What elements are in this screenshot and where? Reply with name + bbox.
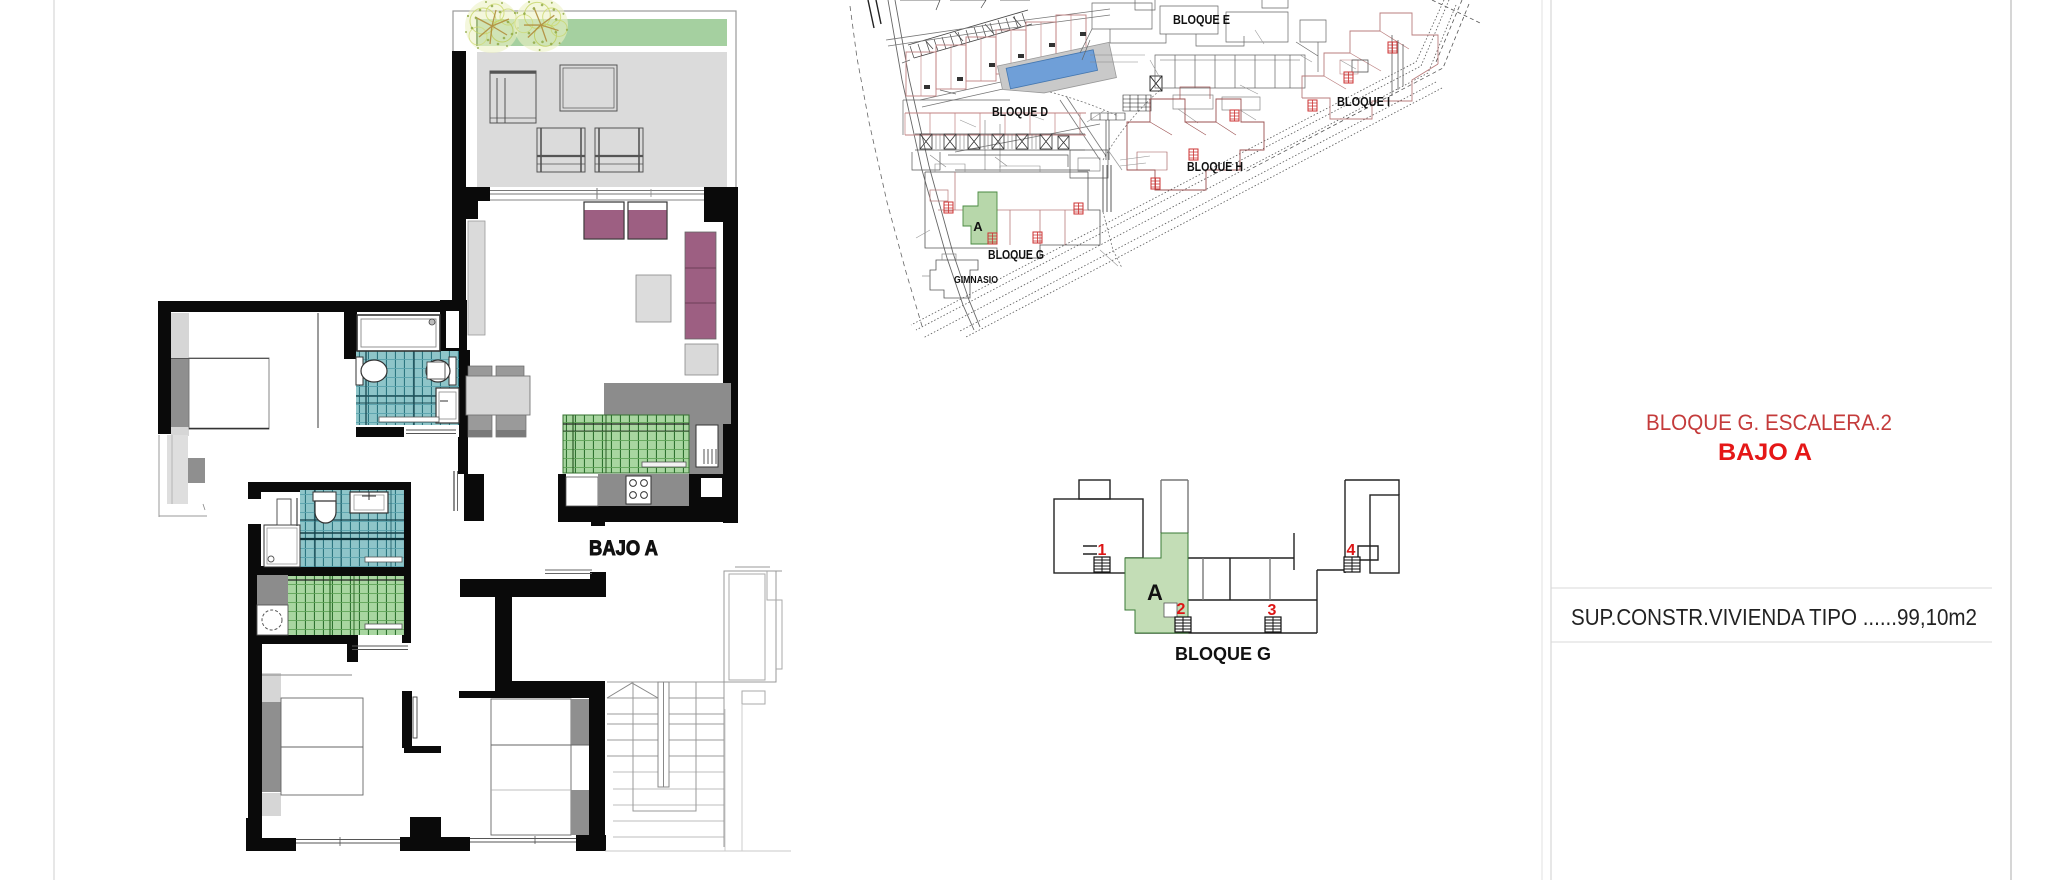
svg-text:BAJO A: BAJO A <box>1718 439 1812 466</box>
svg-text:A: A <box>1147 580 1163 605</box>
svg-text:BLOQUE I: BLOQUE I <box>1337 95 1390 109</box>
svg-text:SUP.CONSTR.VIVIENDA TIPO .....: SUP.CONSTR.VIVIENDA TIPO ......99,10m2 <box>1571 604 1977 630</box>
svg-text:BLOQUE G: BLOQUE G <box>988 248 1044 262</box>
svg-text:BLOQUE E: BLOQUE E <box>1173 13 1230 27</box>
svg-text:A: A <box>973 219 983 234</box>
svg-text:BLOQUE G: BLOQUE G <box>1175 644 1271 664</box>
svg-text:BLOQUE H: BLOQUE H <box>1187 160 1243 174</box>
svg-text:BLOQUE G. ESCALERA.2: BLOQUE G. ESCALERA.2 <box>1646 410 1892 435</box>
svg-text:GIMNASIO: GIMNASIO <box>954 274 998 286</box>
svg-text:2: 2 <box>1177 601 1186 618</box>
svg-text:BAJO A: BAJO A <box>589 537 658 560</box>
svg-text:BLOQUE D: BLOQUE D <box>992 105 1048 119</box>
